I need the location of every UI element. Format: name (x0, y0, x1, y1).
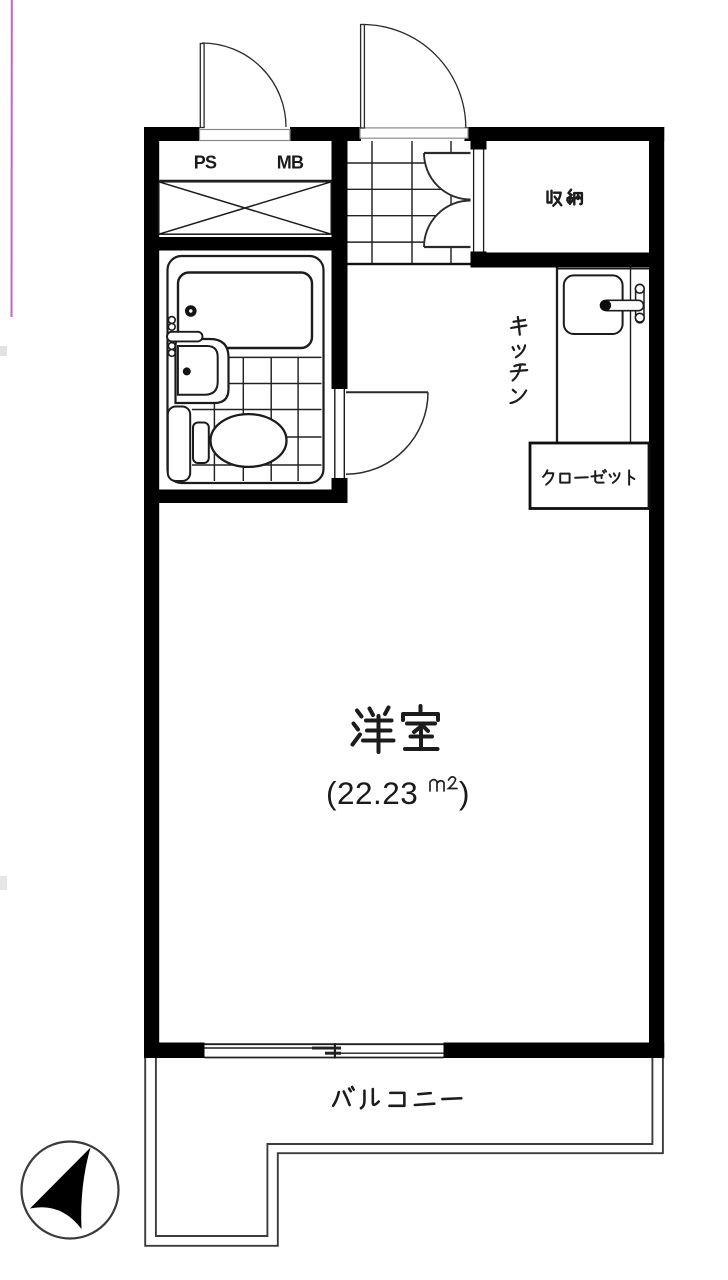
svg-text:PS: PS (194, 153, 217, 173)
svg-text:MB: MB (277, 153, 304, 173)
svg-text:): ) (459, 775, 470, 811)
svg-text:(22.23: (22.23 (326, 775, 418, 811)
